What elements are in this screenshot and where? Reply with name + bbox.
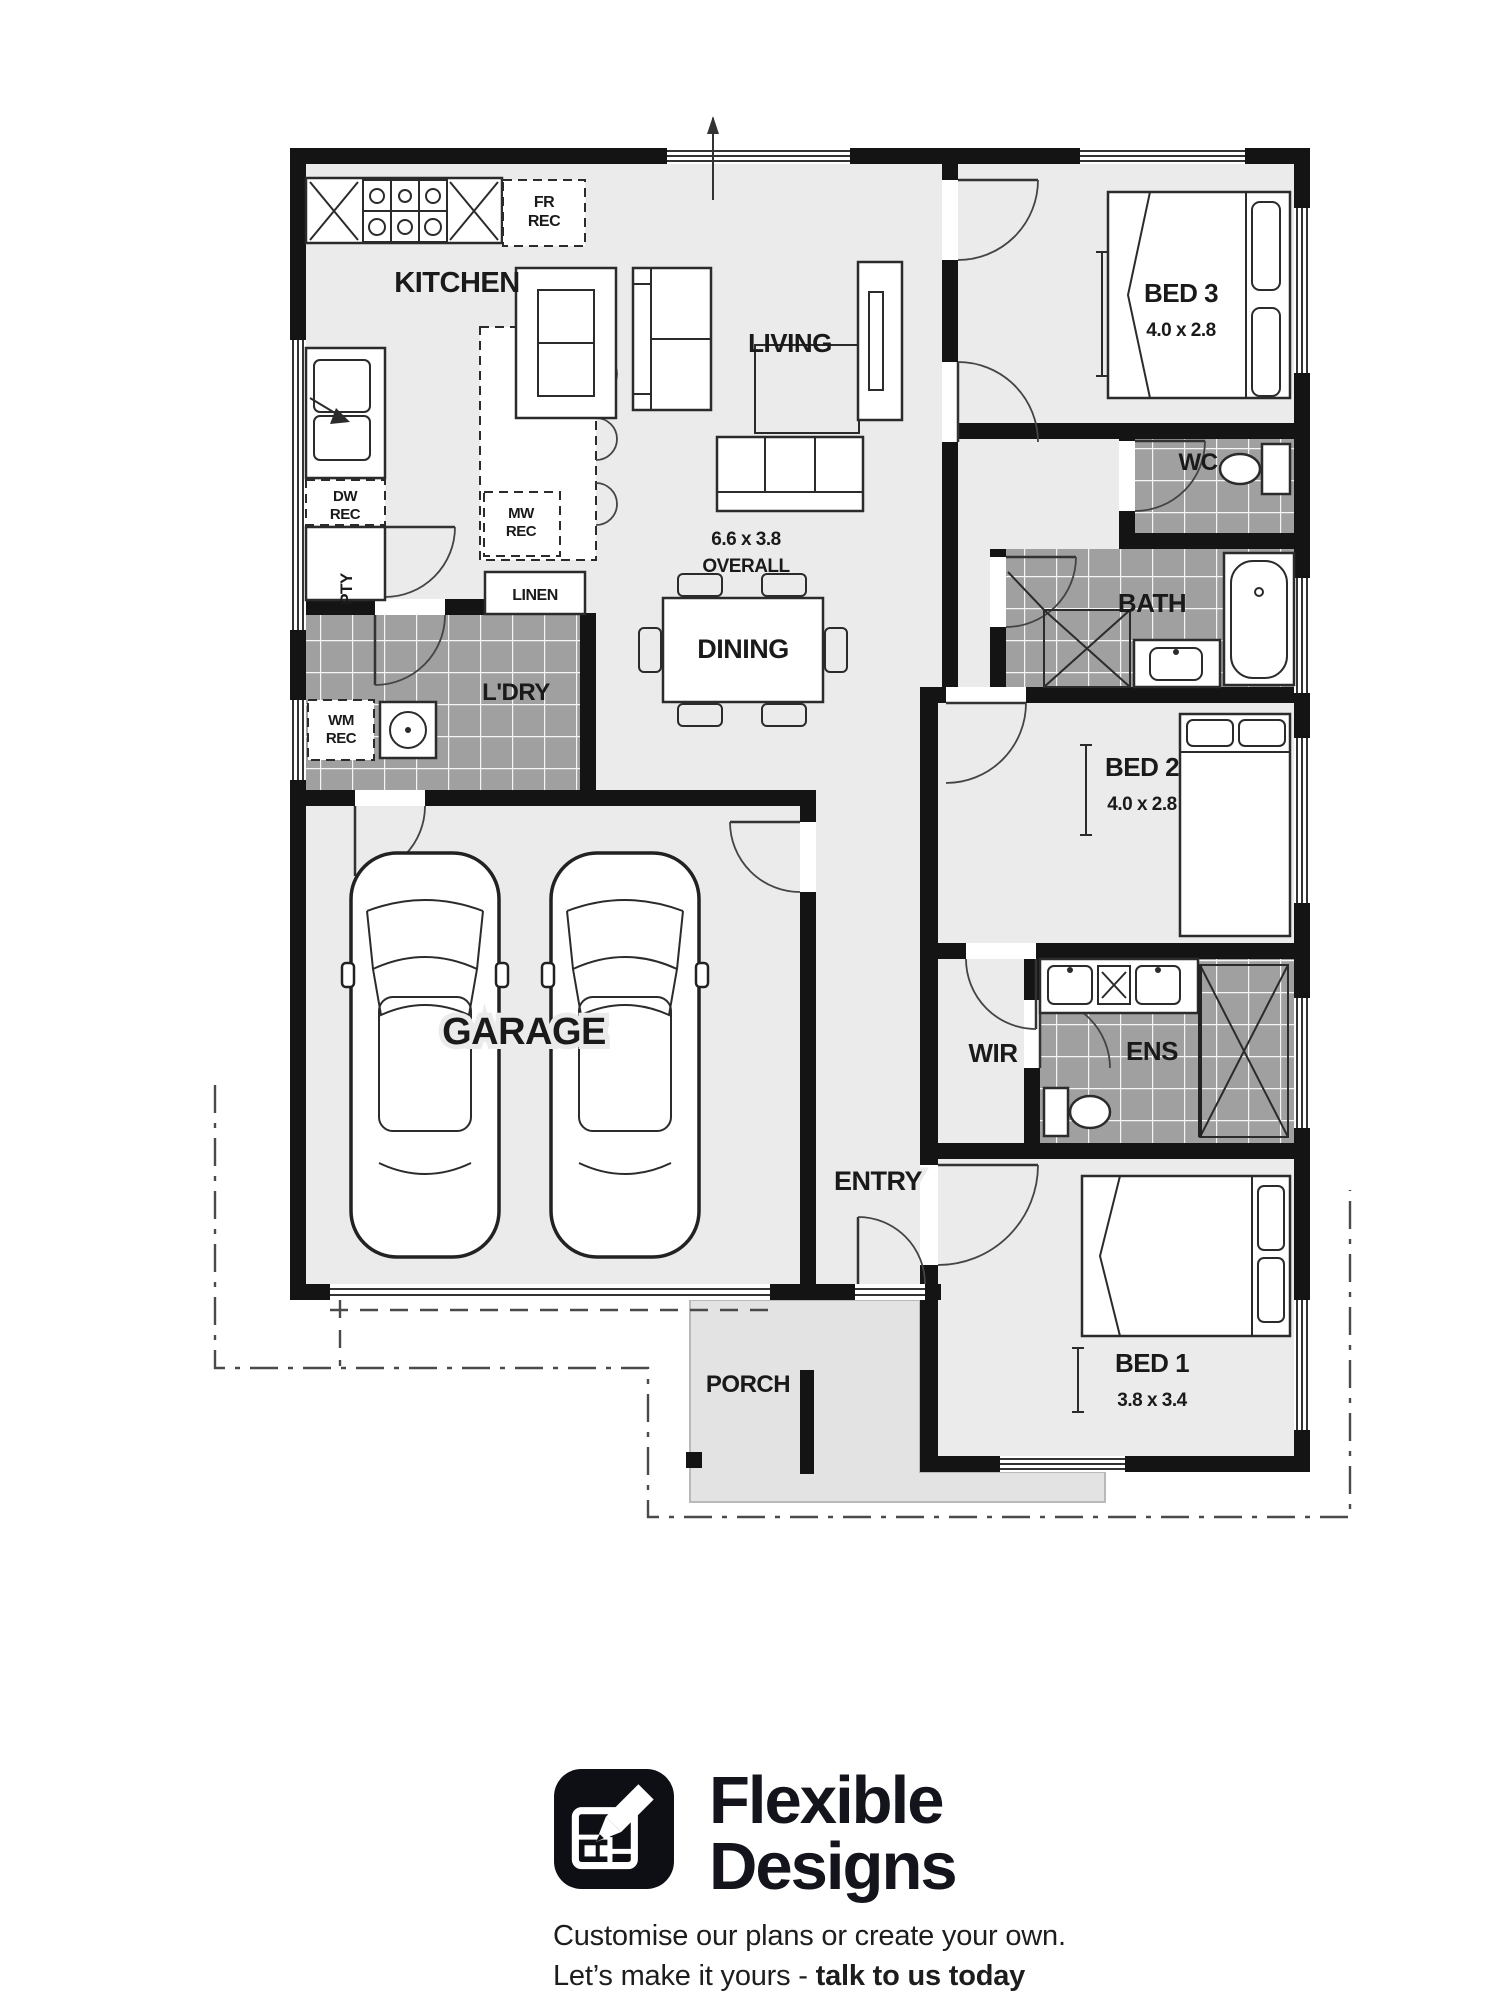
label-entry: ENTRY [834, 1166, 922, 1196]
label-pty: PTY [337, 572, 356, 605]
label-overall-1: 6.6 x 3.8 [711, 529, 780, 550]
brand-tagline: Customise our plans or create your own. … [553, 1917, 1173, 1996]
tv-unit [858, 262, 902, 420]
label-fr-rec-2: REC [528, 213, 561, 230]
brand-name-line2: Designs [709, 1834, 956, 1900]
label-porch: PORCH [706, 1371, 790, 1398]
label-bed2: BED 2 [1105, 752, 1179, 782]
label-bed1-dims: 3.8 x 3.4 [1117, 1390, 1187, 1411]
porch-post [686, 1452, 702, 1468]
label-linen: LINEN [512, 587, 558, 604]
label-bed3-dims: 4.0 x 2.8 [1146, 320, 1215, 341]
wc-toilet [1220, 454, 1260, 484]
label-mw-rec-1: MW [508, 505, 535, 522]
brand-name-line1: Flexible [709, 1768, 956, 1834]
tagline-line2: Let’s make it yours - talk to us today [553, 1957, 1173, 1996]
floor-plan-drawing: KITCHEN LIVING 6.6 x 3.8 OVERALL DINING … [0, 0, 1500, 2000]
wc-cistern [1262, 444, 1290, 494]
label-bed1: BED 1 [1115, 1348, 1189, 1378]
label-wc: WC [1179, 449, 1218, 476]
brand-name: Flexible Designs [709, 1768, 956, 1899]
tagline-line1: Customise our plans or create your own. [553, 1917, 1173, 1956]
label-bed3: BED 3 [1144, 278, 1218, 308]
porch-pier [800, 1370, 814, 1474]
label-wm-rec-2: REC [326, 730, 357, 747]
label-dw-rec-1: DW [333, 488, 358, 505]
label-living: LIVING [748, 328, 832, 358]
label-dining: DINING [697, 634, 789, 664]
label-wm-rec-1: WM [328, 712, 354, 729]
label-garage: GARAGE [442, 1011, 606, 1053]
label-fr-rec-1: FR [534, 194, 555, 211]
label-kitchen: KITCHEN [394, 267, 519, 299]
floor-plan-page: KITCHEN LIVING 6.6 x 3.8 OVERALL DINING … [0, 0, 1500, 2000]
label-dw-rec-2: REC [330, 506, 361, 523]
label-ens: ENS [1126, 1036, 1178, 1066]
brand-footer: Flexible Designs Customise our plans or … [553, 1768, 1173, 1996]
ensuite-toilet [1070, 1096, 1110, 1128]
ensuite-cistern [1044, 1088, 1068, 1136]
car-1 [342, 853, 508, 1257]
label-bed2-dims: 4.0 x 2.8 [1107, 794, 1176, 815]
flexible-designs-logo-icon [553, 1768, 675, 1890]
car-2 [542, 853, 708, 1257]
label-ldry: L'DRY [482, 679, 550, 706]
sofa-2 [717, 437, 863, 511]
bed-2 [1180, 714, 1290, 936]
label-wir: WIR [968, 1038, 1018, 1068]
label-mw-rec-2: REC [506, 523, 537, 540]
label-overall-2: OVERALL [702, 556, 790, 577]
label-bath: BATH [1118, 588, 1186, 618]
